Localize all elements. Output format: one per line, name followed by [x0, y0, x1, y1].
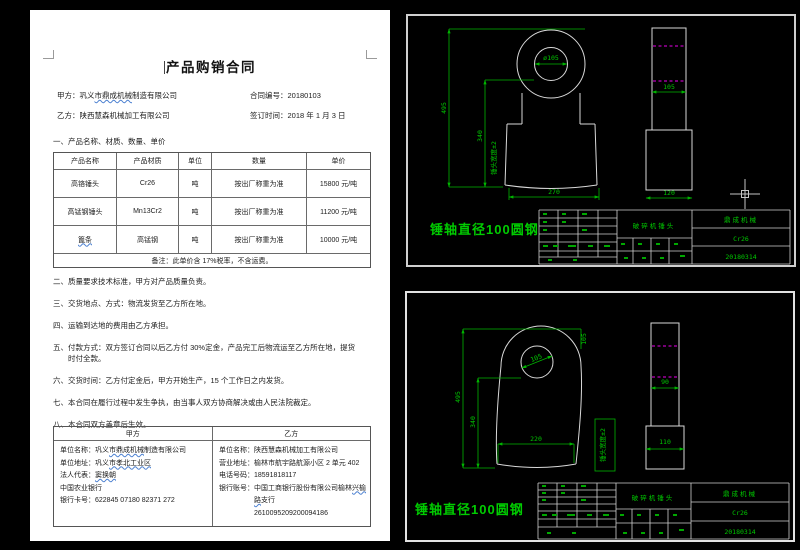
detail-line: 单位地址：巩义市孝北工业区: [60, 458, 208, 471]
cad-drawing-top-panel[interactable]: ø105 495 340 锤头宽度±2 270 105 120: [406, 14, 796, 267]
dim-bottom-width: 270: [548, 188, 560, 196]
material-spec: Cr26: [732, 509, 748, 517]
product-cell: 高锰钢: [116, 226, 178, 253]
spellcheck-underline: 篦条: [78, 235, 92, 245]
dim-mid-height: 340: [469, 416, 477, 428]
product-cell: Cr26: [116, 170, 178, 197]
table-row: 高铬锤头 Cr26 吨 按出厂称重为准 15800 元/吨: [54, 169, 370, 197]
hidden-hole-lines: [652, 346, 678, 377]
hammer-side-view: 105 120: [646, 28, 692, 198]
drawing-date: 20180314: [724, 528, 755, 536]
hammer-front-view: [496, 326, 581, 467]
note-box: 锤头宽度±2: [595, 419, 615, 471]
dim-hole-diameter: ø105: [543, 54, 559, 62]
party-b-header: 乙方: [212, 427, 371, 440]
spellcheck-underline: 市鼎成机械: [95, 91, 133, 100]
detail-line: 银行卡号：622845 07180 82371 272: [60, 495, 208, 508]
detail-line: 电话号码：18591818117: [219, 470, 366, 483]
shaft-note-label: 锤轴直径100圆钢: [429, 222, 539, 237]
cad-crosshair-cursor[interactable]: [730, 179, 760, 209]
product-cell: 按出厂称重为准: [211, 226, 306, 253]
dim-mid-height: 340: [476, 130, 484, 142]
party-b-details: 单位名称：陕西慧森机械加工有限公司 营业地址：榆林市航宇路航源小区 2 单元 4…: [212, 441, 370, 526]
dim-top-offset: 105: [580, 333, 588, 345]
header-cell: 产品材质: [116, 153, 178, 169]
cad-bottom-canvas: 105 105 495 340 220 90 110: [407, 293, 793, 540]
table-row: 高锰钢锤头 Mn13Cr2 吨 按出厂称重为准 11200 元/吨: [54, 197, 370, 225]
shaft-note-label: 锤轴直径100圆钢: [414, 502, 524, 517]
dim-side-upper: 90: [661, 378, 669, 386]
parties-table: 甲方 乙方 单位名称：巩义市鼎成机械制造有限公司 单位地址：巩义市孝北工业区 法…: [53, 426, 371, 527]
contract-title: 产品购销合同: [30, 56, 390, 76]
product-cell: 11200 元/吨: [306, 198, 370, 225]
table-row: 篦条 高锰钢 吨 按出厂称重为准 10000 元/吨: [54, 225, 370, 253]
cad-top-canvas: ø105 495 340 锤头宽度±2 270 105 120: [408, 16, 794, 265]
section-1-heading: 一、产品名称、材质、数量、单价: [53, 136, 166, 147]
width-note-vertical: 锤头宽度±2: [489, 141, 498, 175]
part-name: 破碎机锤头: [632, 493, 675, 502]
product-cell: 吨: [178, 226, 211, 253]
header-cell: 单位: [178, 153, 211, 169]
width-note-vertical: 锤头宽度±2: [598, 428, 607, 462]
cad-drawing-bottom-panel[interactable]: 105 105 495 340 220 90 110: [405, 291, 795, 542]
contract-document-page[interactable]: 产品购销合同 甲方：巩义市鼎成机械制造有限公司 合同编号：20180103 乙方…: [30, 10, 390, 541]
dim-side-base: 110: [659, 438, 671, 446]
screenshot-stage: 产品购销合同 甲方：巩义市鼎成机械制造有限公司 合同编号：20180103 乙方…: [0, 0, 800, 550]
contract-clause: 六、交货时间：乙方付定金后，甲方开始生产，15 个工作日之内发货。: [53, 375, 356, 386]
contract-clauses: 二、质量要求技术标准，甲方对产品质量负责。 三、交货地点、方式：物流发货至乙方所…: [53, 276, 356, 441]
drawing-date: 20180314: [725, 253, 756, 261]
part-name: 破碎机锤头: [633, 221, 676, 230]
party-a-header: 甲方: [54, 427, 212, 440]
bank-account-number: 2610095209200094186: [254, 508, 366, 521]
product-table: 产品名称 产品材质 单位 数量 单价 高铬锤头 Cr26 吨 按出厂称重为准 1…: [53, 152, 371, 268]
product-cell: 篦条: [54, 226, 116, 253]
product-cell: 10000 元/吨: [306, 226, 370, 253]
party-b-label: 乙方：: [57, 111, 80, 120]
party-a-details: 单位名称：巩义市鼎成机械制造有限公司 单位地址：巩义市孝北工业区 法人代表：窦换…: [54, 441, 212, 526]
product-cell: 按出厂称重为准: [211, 170, 306, 197]
dim-side-hole: 105: [663, 83, 675, 91]
material-spec: Cr26: [733, 235, 749, 243]
product-table-header: 产品名称 产品材质 单位 数量 单价: [54, 153, 370, 169]
title-block: 破碎机锤头 鼎成机械 Cr26 20180314: [538, 483, 789, 539]
dim-bottom-width: 220: [530, 435, 542, 443]
party-b-line: 乙方：陕西慧森机械加工有限公司 签订时间：2018 年 1 月 3 日: [57, 110, 379, 121]
detail-line: 营业地址：榆林市航宇路航源小区 2 单元 402: [219, 458, 366, 471]
dimensions: ø105 495 340 锤头宽度±2 270: [440, 29, 599, 200]
spellcheck-underline: 市孝北工业区: [109, 460, 151, 467]
detail-line: 单位名称：陕西慧森机械加工有限公司: [219, 445, 366, 458]
dimensions: 105 105 495 340 220: [454, 329, 588, 468]
product-cell: 吨: [178, 198, 211, 225]
detail-line: 单位名称：巩义市鼎成机械制造有限公司: [60, 445, 208, 458]
party-a-line: 甲方：巩义市鼎成机械制造有限公司 合同编号：20180103: [57, 90, 379, 101]
company-name: 鼎成机械: [723, 489, 757, 498]
detail-line: 中国农业银行: [60, 483, 208, 496]
contract-number: 合同编号：20180103: [250, 90, 321, 101]
text-cursor: [164, 61, 165, 74]
hammer-side-view: 90 110: [646, 323, 684, 469]
product-cell: 高铬锤头: [54, 170, 116, 197]
product-cell: 高锰钢锤头: [54, 198, 116, 225]
detail-line: 法人代表：窦换朝: [60, 470, 208, 483]
contract-clause: 七、本合同在履行过程中发生争执，由当事人双方协商解决或由人民法院裁定。: [53, 397, 356, 408]
product-cell: 吨: [178, 170, 211, 197]
table-note: 备注：此单价含 17%税率，不含运费。: [54, 253, 370, 267]
contract-clause: 四、运输到达地的费用由乙方承担。: [53, 320, 356, 331]
header-cell: 数量: [211, 153, 306, 169]
dim-hole-diameter: 105: [529, 352, 543, 364]
sign-date: 签订时间：2018 年 1 月 3 日: [250, 110, 345, 121]
hidden-hole-lines: [653, 46, 685, 81]
title-block: 破碎机锤头 鼎成机械 Cr26 20180314: [539, 210, 790, 264]
title-block-small-text: [543, 213, 685, 261]
dim-total-height: 495: [454, 391, 462, 403]
detail-line: 银行账号：中国工商银行股份有限公司榆林兴榆路支行2610095209200094…: [219, 483, 366, 521]
contract-clause: 三、交货地点、方式：物流发货至乙方所在地。: [53, 298, 356, 309]
product-cell: 15800 元/吨: [306, 170, 370, 197]
contract-clause: 五、付款方式：双方签订合同以后乙方付 30%定金，产品完工后物流运至乙方所在地，…: [53, 342, 356, 364]
spellcheck-underline: 市鼎成机械: [109, 447, 144, 454]
company-name: 鼎成机械: [724, 215, 758, 224]
header-cell: 单价: [306, 153, 370, 169]
party-a-label: 甲方：: [57, 91, 80, 100]
contract-clause: 二、质量要求技术标准，甲方对产品质量负责。: [53, 276, 356, 287]
dim-total-height: 495: [440, 102, 448, 114]
header-cell: 产品名称: [54, 153, 116, 169]
dim-side-base: 120: [663, 189, 675, 197]
spellcheck-underline: 窦换朝: [95, 470, 208, 483]
parties-header: 甲方 乙方: [54, 427, 370, 441]
product-cell: 按出厂称重为准: [211, 198, 306, 225]
product-cell: Mn13Cr2: [116, 198, 178, 225]
